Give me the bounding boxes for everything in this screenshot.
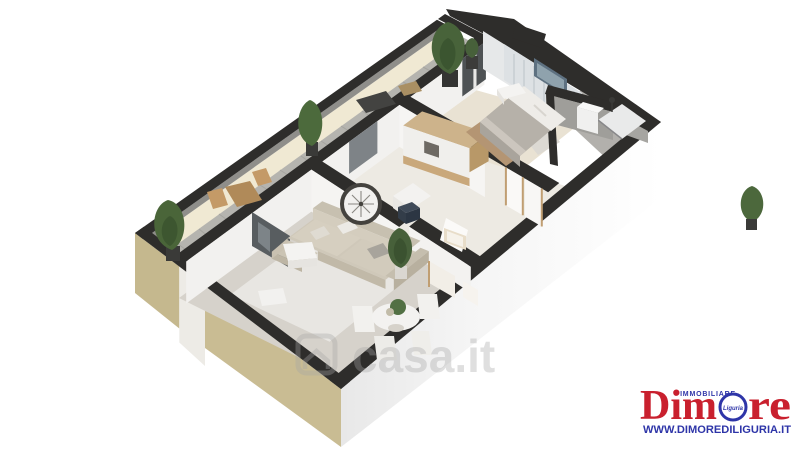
- svg-text:re: re: [748, 383, 791, 429]
- svg-text:Dim: Dim: [640, 383, 717, 429]
- svg-text:casa.it: casa.it: [352, 330, 495, 382]
- svg-text:Liguria: Liguria: [723, 405, 743, 412]
- svg-text:WWW.DIMOREDILIGURIA.IT: WWW.DIMOREDILIGURIA.IT: [643, 424, 791, 436]
